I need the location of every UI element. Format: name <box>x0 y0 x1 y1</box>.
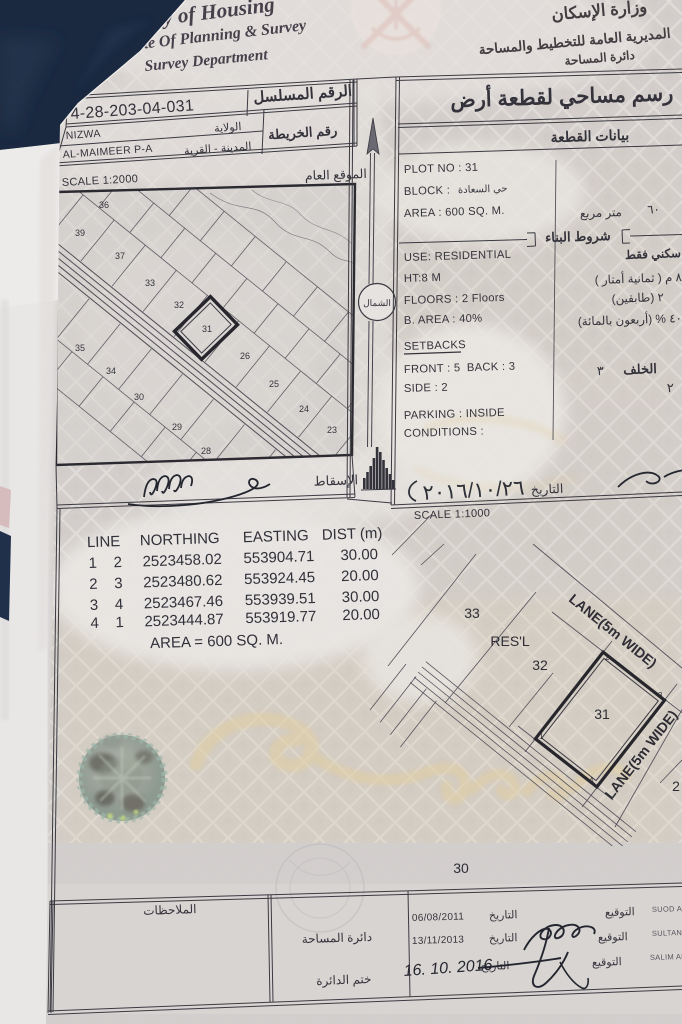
svg-text:SULTAN: SULTAN <box>652 928 682 938</box>
svg-text:29: 29 <box>172 422 182 432</box>
svg-text:39: 39 <box>75 228 85 238</box>
svg-text:37: 37 <box>115 251 125 261</box>
svg-text:دائرة المساحة: دائرة المساحة <box>301 930 372 946</box>
svg-text:4: 4 <box>90 615 99 632</box>
svg-text:32: 32 <box>532 657 548 673</box>
svg-text:التاريخ: التاريخ <box>489 932 518 945</box>
svg-text:الملاحظات: الملاحظات <box>143 902 197 918</box>
svg-text:2: 2 <box>89 576 98 593</box>
svg-text:25: 25 <box>269 379 279 389</box>
svg-text:32: 32 <box>174 300 184 310</box>
svg-text:SALIM AL: SALIM AL <box>650 952 682 962</box>
svg-text:2: 2 <box>605 653 610 662</box>
svg-text:الخلف: الخلف <box>623 361 657 377</box>
svg-text:٨ م ( ثمانية أمتار ): ٨ م ( ثمانية أمتار ) <box>594 269 682 287</box>
svg-text:BACK : 3: BACK : 3 <box>467 361 516 375</box>
svg-text:متر مربع: متر مربع <box>580 205 623 220</box>
svg-text:28: 28 <box>201 446 211 456</box>
svg-text:1: 1 <box>115 614 124 631</box>
svg-text:RES'L: RES'L <box>490 633 529 649</box>
svg-text:553919.77: 553919.77 <box>245 608 316 627</box>
svg-text:3: 3 <box>90 597 99 614</box>
svg-text:1: 1 <box>88 555 97 572</box>
svg-text:NORTHING: NORTHING <box>140 530 220 549</box>
svg-text:2523458.02: 2523458.02 <box>142 551 222 570</box>
svg-text:2523467.46: 2523467.46 <box>144 593 224 612</box>
svg-text:20.00: 20.00 <box>342 606 380 624</box>
svg-text:الولاية: الولاية <box>214 121 242 135</box>
svg-text:30: 30 <box>134 392 144 402</box>
svg-text:553939.51: 553939.51 <box>245 590 316 609</box>
svg-text:SETBACKS: SETBACKS <box>404 339 466 353</box>
svg-text:33: 33 <box>145 278 155 288</box>
svg-text:حي السعادة: حي السعادة <box>458 183 508 196</box>
svg-text:DIST (m): DIST (m) <box>322 525 383 544</box>
svg-text:36: 36 <box>99 200 109 210</box>
svg-text:553924.45: 553924.45 <box>244 569 315 588</box>
svg-text:31: 31 <box>594 706 610 722</box>
svg-text:ختم الدائرة: ختم الدائرة <box>316 972 372 988</box>
svg-text:30.00: 30.00 <box>342 588 380 606</box>
svg-text:الإسقاط: الإسقاط <box>313 472 358 490</box>
svg-text:SIDE : 2: SIDE : 2 <box>404 382 448 395</box>
svg-text:553904.71: 553904.71 <box>243 548 314 567</box>
svg-text:NIZWA: NIZWA <box>65 128 101 142</box>
svg-text:06/08/2011: 06/08/2011 <box>412 911 465 924</box>
svg-text:4: 4 <box>589 776 594 785</box>
svg-text:PLOT NO : 31: PLOT NO : 31 <box>404 162 479 176</box>
svg-text:24: 24 <box>299 404 309 414</box>
svg-text:31: 31 <box>202 324 212 334</box>
svg-text:35: 35 <box>75 343 85 353</box>
svg-text:2: 2 <box>672 778 680 794</box>
svg-text:٦٠: ٦٠ <box>647 202 660 216</box>
svg-text:٢: ٢ <box>667 380 675 395</box>
svg-text:BLOCK :: BLOCK : <box>404 185 451 198</box>
svg-text:1: 1 <box>539 732 544 741</box>
svg-text:2: 2 <box>113 554 122 571</box>
svg-text:4: 4 <box>115 596 124 613</box>
svg-text:20.00: 20.00 <box>341 567 379 585</box>
svg-text:33: 33 <box>464 605 480 621</box>
svg-text:2523480.62: 2523480.62 <box>143 572 223 591</box>
svg-text:30.00: 30.00 <box>340 546 378 564</box>
svg-text:3: 3 <box>658 691 663 700</box>
svg-text:التاريخ: التاريخ <box>531 482 564 498</box>
svg-text:LINE: LINE <box>87 533 121 551</box>
svg-text:٢ (طابقين): ٢ (طابقين) <box>611 290 664 306</box>
svg-text:بيانات القطعة: بيانات القطعة <box>550 127 629 145</box>
svg-text:SUOD AL: SUOD AL <box>652 904 682 914</box>
svg-text:الشمال: الشمال <box>363 298 391 308</box>
svg-text:التوقيع: التوقيع <box>605 906 635 919</box>
svg-text:التوقيع: التوقيع <box>598 931 628 944</box>
svg-text:٣: ٣ <box>597 363 605 378</box>
svg-text:التاريخ: التاريخ <box>489 909 518 922</box>
svg-text:التوقيع: التوقيع <box>592 956 622 969</box>
svg-text:B. AREA : 40%: B. AREA : 40% <box>404 313 483 327</box>
svg-text:30: 30 <box>453 860 469 876</box>
svg-text:23: 23 <box>327 425 337 435</box>
svg-text:3: 3 <box>114 575 123 592</box>
svg-text:HT:8 M: HT:8 M <box>404 272 442 285</box>
svg-text:26: 26 <box>240 351 250 361</box>
svg-text:34: 34 <box>106 366 116 376</box>
svg-text:13/11/2013: 13/11/2013 <box>412 934 465 947</box>
svg-text:EASTING: EASTING <box>243 527 309 546</box>
svg-text:CONDITIONS :: CONDITIONS : <box>404 425 484 440</box>
svg-text:2523444.87: 2523444.87 <box>144 611 224 630</box>
svg-text:FRONT : 5: FRONT : 5 <box>404 362 461 376</box>
